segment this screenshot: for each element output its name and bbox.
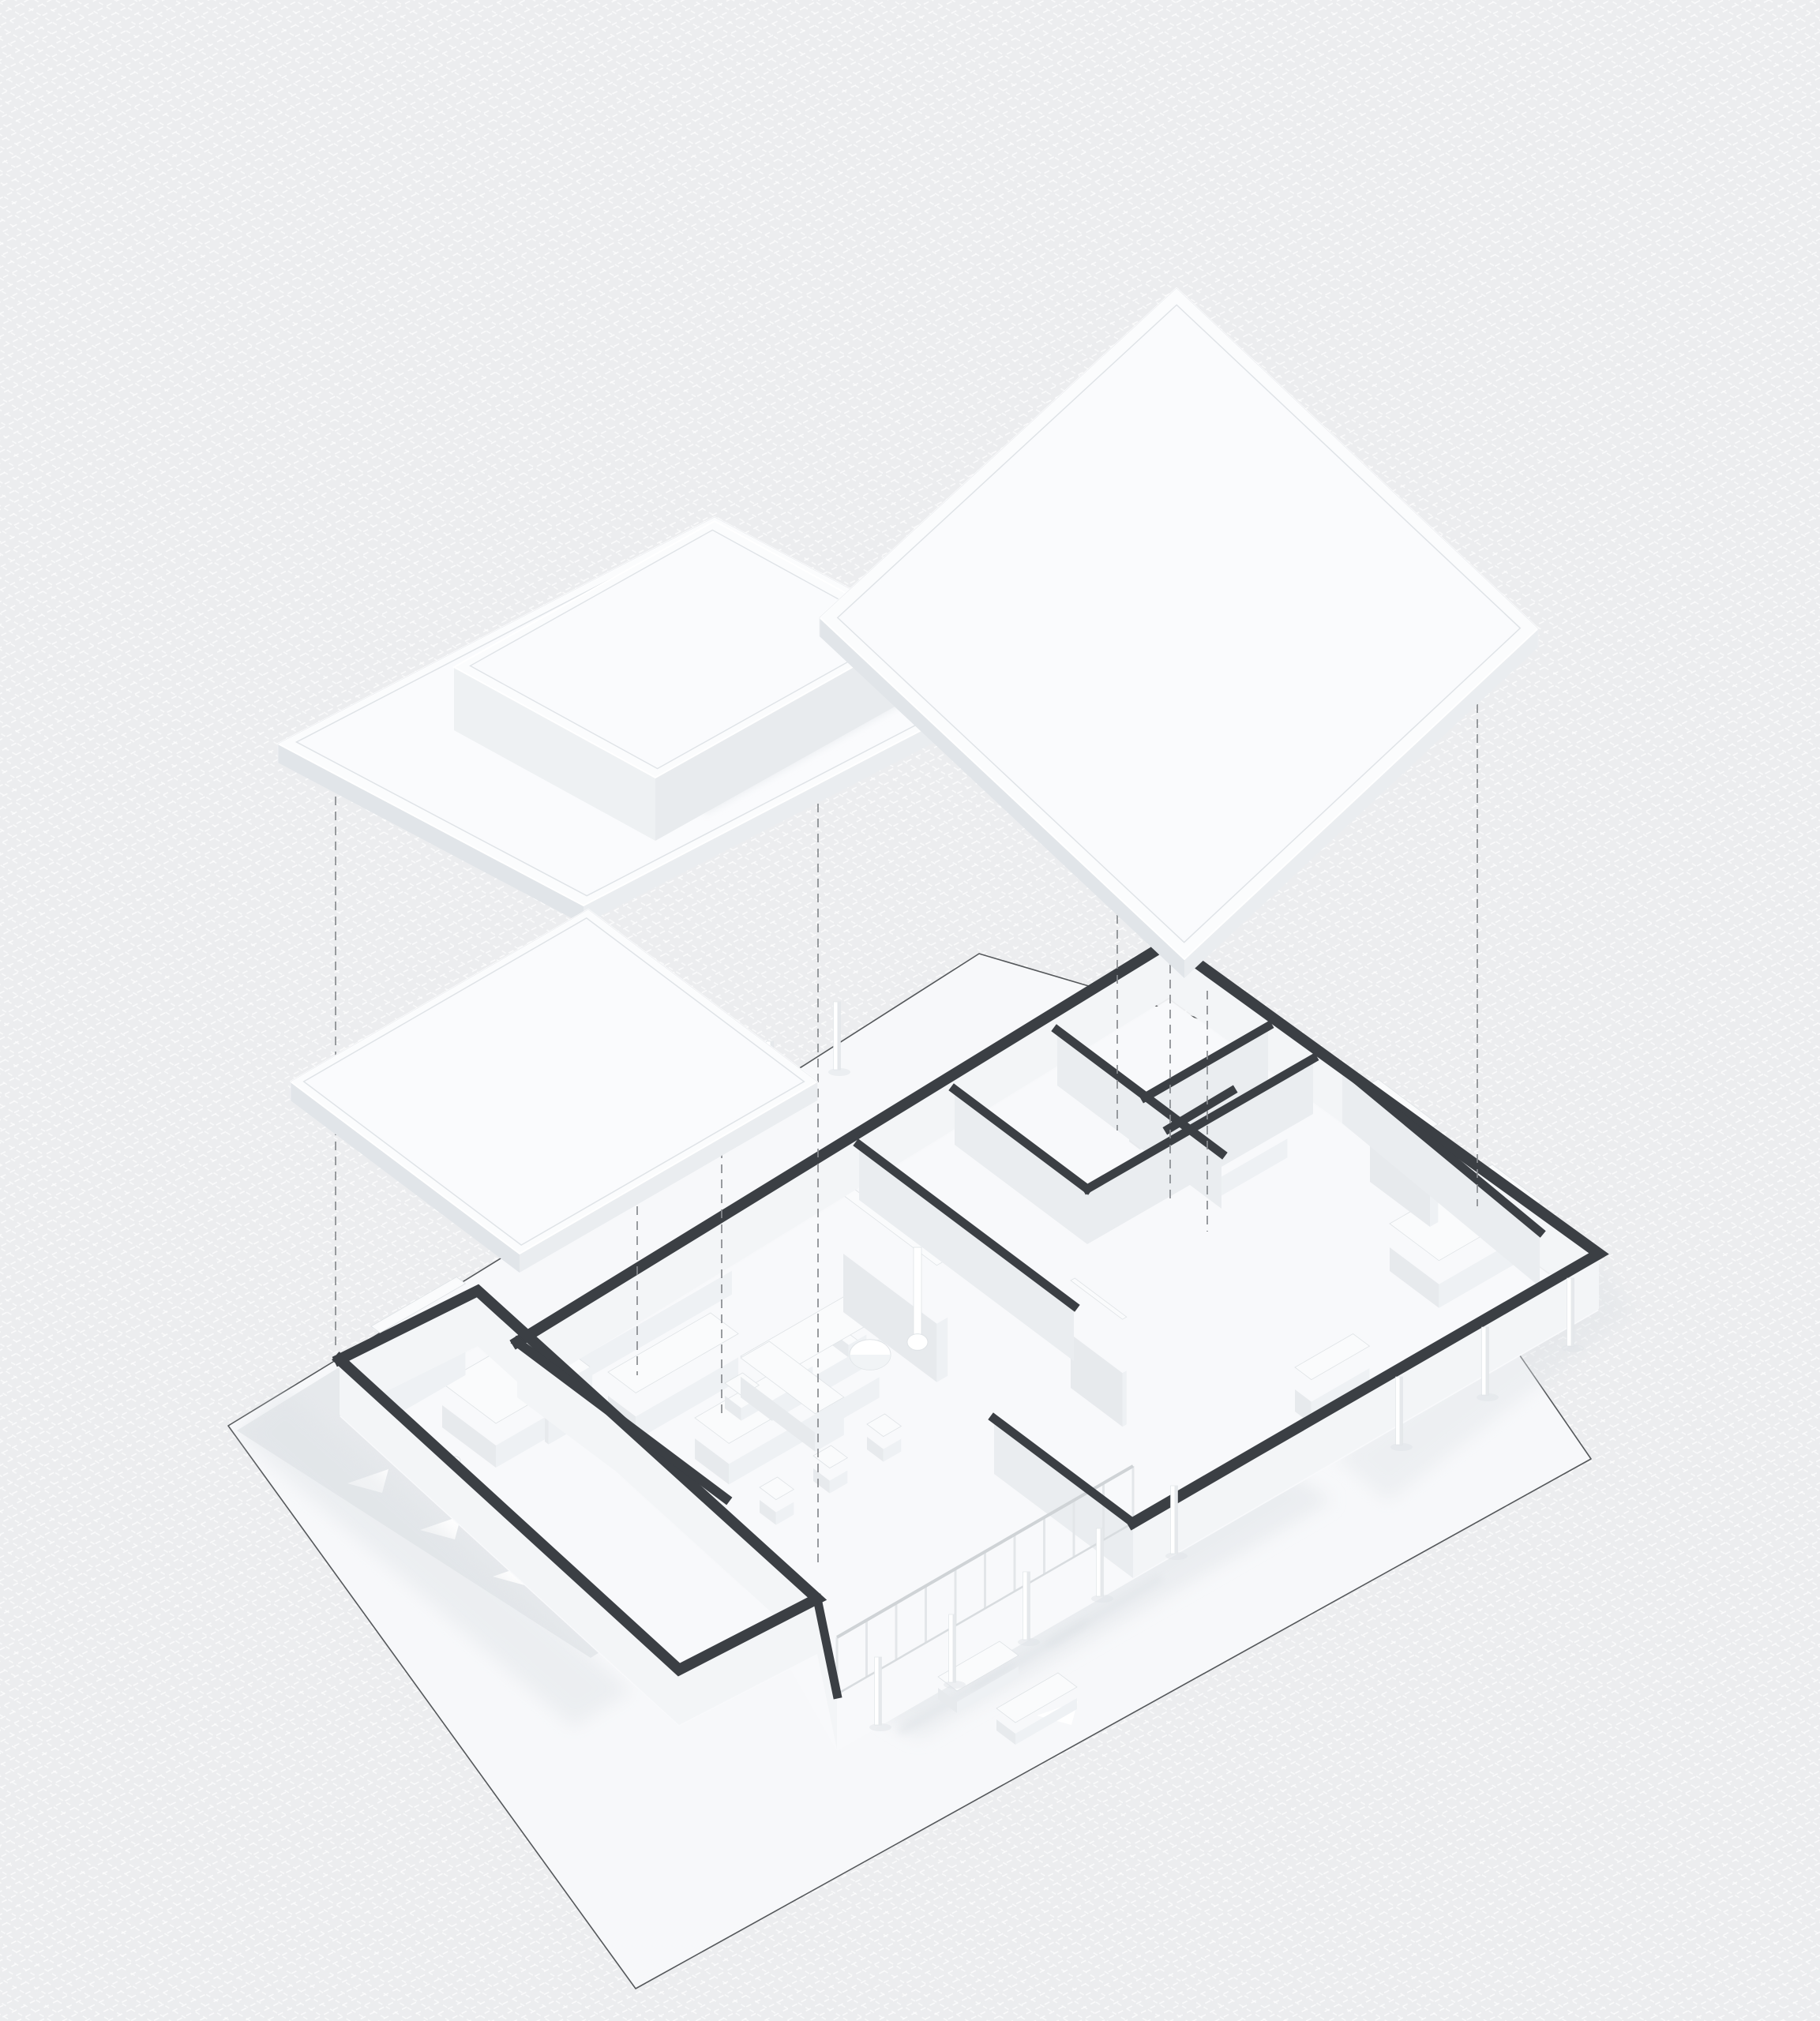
axonometric-scene [0, 0, 1820, 2021]
coffee-table [850, 1340, 891, 1370]
exploded-axonometric-drawing [0, 0, 1820, 2021]
